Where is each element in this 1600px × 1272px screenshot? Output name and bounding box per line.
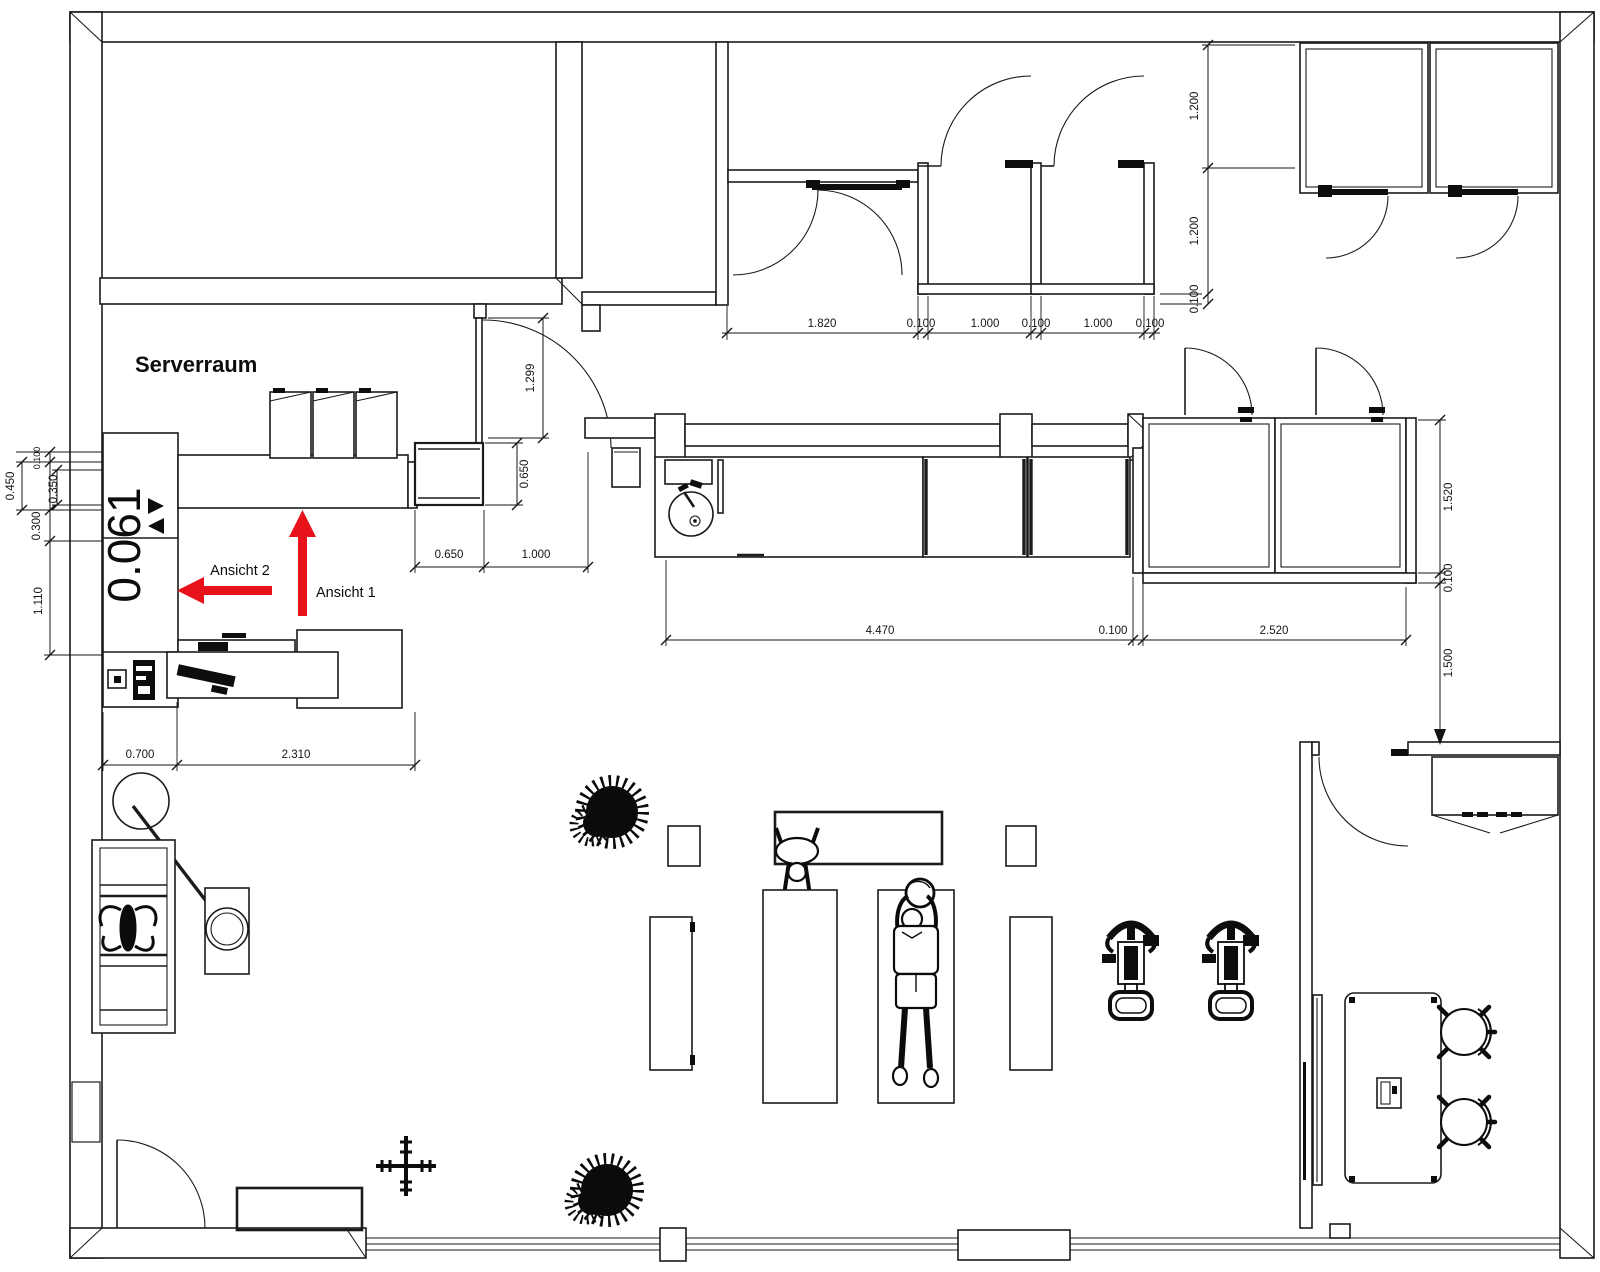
vestibule-double-door <box>728 170 918 275</box>
server-racks <box>270 388 397 458</box>
door-swing-arc <box>1319 757 1408 846</box>
dimension-label: 1.520 <box>1443 483 1455 512</box>
floor-plan-screenshot: 1.8200.1001.0000.1001.0000.1001.2001.200… <box>0 0 1600 1272</box>
view-arrow-2: Ansicht 2 <box>177 563 272 604</box>
meeting-room <box>1300 742 1560 1238</box>
under-counter-fridge <box>612 448 640 487</box>
kitchen-cabinet <box>923 457 1027 557</box>
door-swing-arc <box>1456 196 1518 258</box>
top-second-room-walls <box>582 42 728 331</box>
dimension-label: 0.100 <box>32 447 42 470</box>
room-label: Serverraum <box>135 352 257 377</box>
gym-mat <box>650 917 692 1070</box>
weight-bench <box>92 840 175 1033</box>
view-arrow-1: Ansicht 1 <box>289 510 376 616</box>
door-leaf <box>1118 160 1144 168</box>
dimension-label: 0.100 <box>1022 318 1051 330</box>
dimension-label: 1.000 <box>1084 318 1113 330</box>
dimension-label: 2.310 <box>282 749 311 761</box>
monitor-icon <box>198 642 228 651</box>
wc-stalls <box>918 76 1154 294</box>
door-swing-arc <box>1326 196 1388 258</box>
top-right-cubicles <box>1300 43 1558 258</box>
dimension-label: 0.100 <box>1099 625 1128 637</box>
arrowhead-left-icon <box>177 577 204 604</box>
gym-mat <box>763 890 837 1103</box>
exercise-bike <box>1202 924 1259 1019</box>
left-wall-window <box>72 1082 100 1142</box>
dimension-label: 1.110 <box>33 587 45 615</box>
step-board <box>1006 826 1036 866</box>
dimension-label: 1.000 <box>971 318 1000 330</box>
dimension-label: 0.350 <box>48 475 60 504</box>
survey-cross-icon <box>376 1136 436 1196</box>
dimension-label: 0.450 <box>5 472 17 501</box>
bottom-left-door <box>117 1140 205 1228</box>
door-leaf <box>1005 160 1033 168</box>
door-swing-arc <box>1316 348 1383 415</box>
door-swing-arc <box>1054 76 1144 166</box>
door-leaf <box>1391 749 1408 756</box>
dimension-label: 0.650 <box>519 460 531 489</box>
view-arrow-1-label: Ansicht 1 <box>316 585 376 601</box>
dimension-label: 1.820 <box>808 318 837 330</box>
dimension-label: 1.500 <box>1443 649 1455 678</box>
door-leaf <box>812 184 902 190</box>
bottom-window-band <box>366 1228 1560 1261</box>
door-swing-arc <box>941 76 1031 166</box>
dimension-label: 4.470 <box>866 625 895 637</box>
dimension-label: 0.650 <box>435 549 464 561</box>
exercise-bike <box>1102 924 1159 1019</box>
door-swing-arc <box>817 190 902 275</box>
dimension-label: 0.700 <box>126 749 155 761</box>
wall-bench <box>237 1188 362 1230</box>
dimension-label: 0.100 <box>1136 318 1165 330</box>
kitchenette <box>585 414 1143 573</box>
office-chair <box>1439 1007 1495 1057</box>
level-code-label: 0.061 <box>98 487 150 602</box>
sink-backsplash <box>665 460 712 484</box>
dimension-label: 1.200 <box>1189 92 1201 121</box>
view-arrow-2-label: Ansicht 2 <box>210 563 270 579</box>
dimension-label: 1.200 <box>1189 217 1201 246</box>
door-leaf <box>476 318 482 448</box>
gym-area <box>92 773 1259 1230</box>
floor-plan-canvas: 1.8200.1001.0000.1001.0000.1001.2001.200… <box>0 0 1600 1272</box>
plant <box>569 1159 638 1221</box>
mid-right-rooms <box>1143 348 1416 583</box>
top-left-room-walls <box>100 42 582 304</box>
facade-pillar-small <box>660 1228 686 1261</box>
plant <box>574 781 643 843</box>
printer-icon <box>133 660 155 700</box>
arrowhead-up-icon <box>289 510 316 537</box>
dimension-label: 0.100 <box>1189 285 1201 314</box>
door-swing-arc <box>117 1140 205 1228</box>
dimension-label: 0.100 <box>1443 564 1455 593</box>
server-cabinet <box>415 443 483 505</box>
kitchen-cabinet <box>1028 457 1130 557</box>
server-counter <box>178 455 408 508</box>
dimension-label: 1.299 <box>525 364 537 393</box>
door-swing-arc <box>1185 348 1252 415</box>
dimension-label: 0.300 <box>31 512 43 541</box>
facade-pillar-large <box>958 1230 1070 1260</box>
wardrobe <box>1432 757 1558 833</box>
office-chair <box>1439 1097 1495 1147</box>
dimension-label: 2.520 <box>1260 625 1289 637</box>
dimension-label: 1.000 <box>522 549 551 561</box>
dimension-label: 0.100 <box>907 318 936 330</box>
gym-mat <box>1010 917 1052 1070</box>
step-board <box>668 826 700 866</box>
door-swing-arc <box>733 190 818 275</box>
